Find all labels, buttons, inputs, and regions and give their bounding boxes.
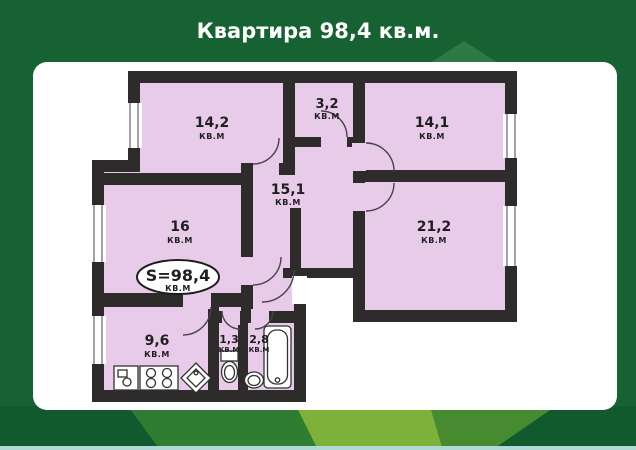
room-area-value: 3,2	[315, 97, 338, 112]
wall-segment	[353, 310, 517, 322]
total-area-badge: S=98,4 КВ.М	[137, 260, 219, 294]
room-area-value: 16	[170, 219, 189, 235]
room-area-unit: КВ.М	[144, 350, 170, 359]
room-area-unit: КВ.М	[249, 346, 270, 354]
room-label-1-3: 1,3 КВ.М	[219, 333, 240, 354]
wall-segment	[92, 293, 253, 307]
room-area-value: 21,2	[417, 219, 452, 235]
entrance-opening	[292, 276, 307, 304]
room-label-16: 16 КВ.М	[167, 219, 193, 245]
window	[90, 316, 106, 364]
kitchen-fixtures	[114, 363, 211, 393]
washbasin-icon	[245, 372, 264, 388]
room-area-unit: КВ.М	[219, 346, 240, 354]
room-area-value: 15,1	[271, 182, 306, 198]
stripe-mid	[128, 406, 318, 450]
wall-segment	[283, 71, 295, 175]
room-label-3-2: 3,2 КВ.М	[314, 97, 340, 121]
bottom-stripes	[0, 406, 636, 450]
room-label-14-1: 14,1 КВ.М	[415, 115, 450, 141]
room-label-21-2: 21,2 КВ.М	[417, 219, 452, 245]
page-title: Квартира 98,4 кв.м.	[197, 19, 440, 43]
bottom-teal-line	[0, 446, 636, 450]
room-area-value: 14,1	[415, 115, 450, 131]
washing-machine-icon	[114, 366, 138, 390]
room-label-2-8: 2,8 КВ.М	[249, 333, 270, 354]
room-area-value: 9,6	[145, 333, 170, 349]
wall-segment	[92, 173, 247, 185]
wall-segment	[353, 170, 517, 182]
room-area-value: 1,3	[219, 333, 239, 346]
wall-segment	[208, 307, 219, 402]
wall-segment	[92, 160, 128, 172]
room-area-value: 14,2	[195, 115, 230, 131]
stripe-light	[296, 406, 443, 450]
wall-segment	[505, 71, 517, 322]
wall-segment	[128, 71, 517, 83]
room-area-unit: КВ.М	[167, 236, 193, 245]
room-area-value: 2,8	[249, 333, 269, 346]
room-area-unit: КВ.М	[275, 198, 301, 207]
window	[503, 114, 519, 158]
wall-segment	[290, 208, 301, 278]
room-area-unit: КВ.М	[199, 132, 225, 141]
door-opening	[321, 135, 347, 149]
room-label-14-2: 14,2 КВ.М	[195, 115, 230, 141]
door-opening	[222, 309, 240, 325]
total-area-unit: КВ.М	[165, 284, 191, 293]
room-area-unit: КВ.М	[419, 132, 445, 141]
stove-icon	[140, 366, 178, 390]
room-label-15-1: 15,1 КВ.М	[271, 182, 306, 207]
door-opening	[352, 183, 366, 211]
slide: Квартира 98,4 кв.м.	[0, 0, 636, 450]
floor-plan-graphic: Квартира 98,4 кв.м.	[0, 0, 636, 450]
window	[503, 206, 519, 266]
wall-segment	[92, 390, 306, 402]
door-opening	[352, 143, 366, 171]
room-area-unit: КВ.М	[314, 112, 340, 121]
window	[126, 103, 142, 148]
room-area-unit: КВ.М	[421, 236, 447, 245]
door-opening	[240, 257, 254, 285]
total-area-value: S=98,4	[146, 266, 210, 285]
wall-segment	[92, 160, 104, 402]
room-label-9-6: 9,6 КВ.М	[144, 333, 170, 359]
toilet-icon	[221, 351, 238, 383]
window	[90, 205, 106, 262]
door-opening	[251, 309, 269, 325]
